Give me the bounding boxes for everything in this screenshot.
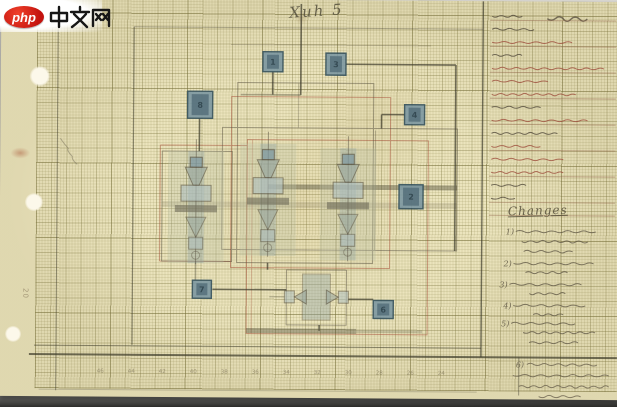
title-block-entry-text <box>491 171 563 174</box>
title-block-entry-text <box>492 28 534 30</box>
body <box>333 182 363 198</box>
foot <box>341 234 355 246</box>
footer-note-line <box>527 363 597 366</box>
change-item-marker: 5) <box>501 319 509 328</box>
title-block-entry-text <box>492 15 522 17</box>
change-item-marker: 1) <box>506 227 514 236</box>
title-block-entry-text <box>491 197 515 199</box>
ruler-number: 32 <box>314 370 321 376</box>
title-block-entry-text <box>491 184 526 186</box>
change-note-line <box>533 314 563 316</box>
scanned-drawing-page: 1384276 1)2)3)4)5) 6) 464442403836343230… <box>0 0 617 407</box>
ruler-number: 30 <box>345 370 353 376</box>
change-item-marker: 2) <box>503 259 512 268</box>
terminal-block: 2 <box>399 185 423 209</box>
ruler-number: 42 <box>159 369 166 375</box>
terminal-label: 1 <box>270 58 276 67</box>
title-block-entry-text <box>492 80 548 82</box>
bottom-tube-unit <box>284 274 348 320</box>
footer-note-line <box>539 395 581 398</box>
footer-note-line <box>519 385 609 388</box>
ruler-number: 28 <box>376 370 384 376</box>
ruler-number: 34 <box>283 370 291 376</box>
change-note-line <box>523 331 595 334</box>
ruler-number: 24 <box>438 371 446 377</box>
ruler-number: 38 <box>221 369 229 375</box>
title-block-entry-text <box>491 132 557 135</box>
title-block-rule <box>489 150 615 151</box>
title-block-entry-text <box>491 145 540 147</box>
cross-bar <box>327 202 369 209</box>
change-note-line <box>522 240 588 243</box>
title-block-entry-text <box>492 54 522 56</box>
ruler-number: 26 <box>407 371 415 377</box>
terminal-label: 4 <box>412 111 418 120</box>
top-cap <box>342 154 354 164</box>
terminal-block: 7 <box>192 280 211 298</box>
cross-bar <box>247 198 289 205</box>
title-block-rule <box>490 124 616 125</box>
drawing-sheet: 1384276 1)2)3)4)5) 6) 464442403836343230… <box>0 0 617 400</box>
footer-note-marker: 6) <box>516 360 524 369</box>
pencil-scribble <box>60 138 77 164</box>
change-note-line <box>525 271 567 274</box>
foot <box>189 237 203 249</box>
change-note-line <box>513 304 585 307</box>
title-block-rule <box>490 98 616 99</box>
terminal-block: 8 <box>188 91 213 118</box>
change-note-line <box>509 283 581 286</box>
ruler-number: 36 <box>252 370 260 376</box>
title-block-entry-text <box>492 67 604 70</box>
terminal-label: 3 <box>333 60 339 69</box>
cross-bar <box>175 205 217 212</box>
change-note-line <box>516 230 596 233</box>
terminal-label: 2 <box>408 193 414 202</box>
ruler-number: 40 <box>190 369 198 375</box>
title-block-rule <box>490 20 616 21</box>
php-logo-badge: php <box>4 6 44 28</box>
php-logo: php <box>4 5 114 29</box>
terminal-block: 6 <box>373 300 393 318</box>
title-block-entry-text <box>491 158 563 161</box>
title-block-rule <box>489 176 615 177</box>
title-block-entry-text <box>492 41 572 44</box>
change-item-marker: 3) <box>499 280 507 289</box>
handwritten-signature: Xuh 5 <box>289 0 344 21</box>
ruler-number: 44 <box>128 369 136 375</box>
tube-assembly <box>240 132 297 257</box>
terminal-block: 4 <box>405 105 425 125</box>
terminal-label: 8 <box>197 101 203 110</box>
title-block-entry-text <box>492 119 588 122</box>
ruler-numbers: 464442403836343230282624 <box>97 369 446 377</box>
title-block-entries <box>489 15 616 216</box>
title-block-rule <box>490 72 616 73</box>
change-note-line <box>529 341 578 344</box>
footer-note-line <box>513 374 609 377</box>
change-note-line <box>524 250 573 253</box>
body <box>253 178 283 194</box>
change-note-line <box>514 262 594 265</box>
ruler-number: 46 <box>97 369 105 375</box>
top-cap <box>190 157 202 167</box>
terminal-label: 7 <box>199 285 205 294</box>
tube-assembly <box>320 136 377 261</box>
terminal-block: 3 <box>326 53 346 75</box>
change-note-line <box>529 292 565 295</box>
title-block-rule <box>490 46 616 47</box>
top-cap <box>262 150 274 160</box>
title-block-entry-text <box>492 93 576 96</box>
terminal-label: 6 <box>380 305 386 314</box>
changes-notes: 1)2)3)4)5) <box>499 227 596 344</box>
foot <box>261 230 275 242</box>
site-name-glyphs <box>48 5 114 29</box>
schematic-drawing: 1384276 1)2)3)4)5) 6) 464442403836343230… <box>0 0 617 400</box>
change-item-marker: 4) <box>502 301 511 310</box>
footer-notes: 6) <box>513 360 609 398</box>
margin-stamp: 20 <box>21 288 29 299</box>
changes-heading: Changes <box>508 203 568 219</box>
terminal-block: 1 <box>263 52 283 72</box>
title-block-entry-text <box>492 106 541 108</box>
tube-assembly <box>168 139 225 264</box>
change-note-line <box>511 322 575 325</box>
body <box>181 185 211 201</box>
